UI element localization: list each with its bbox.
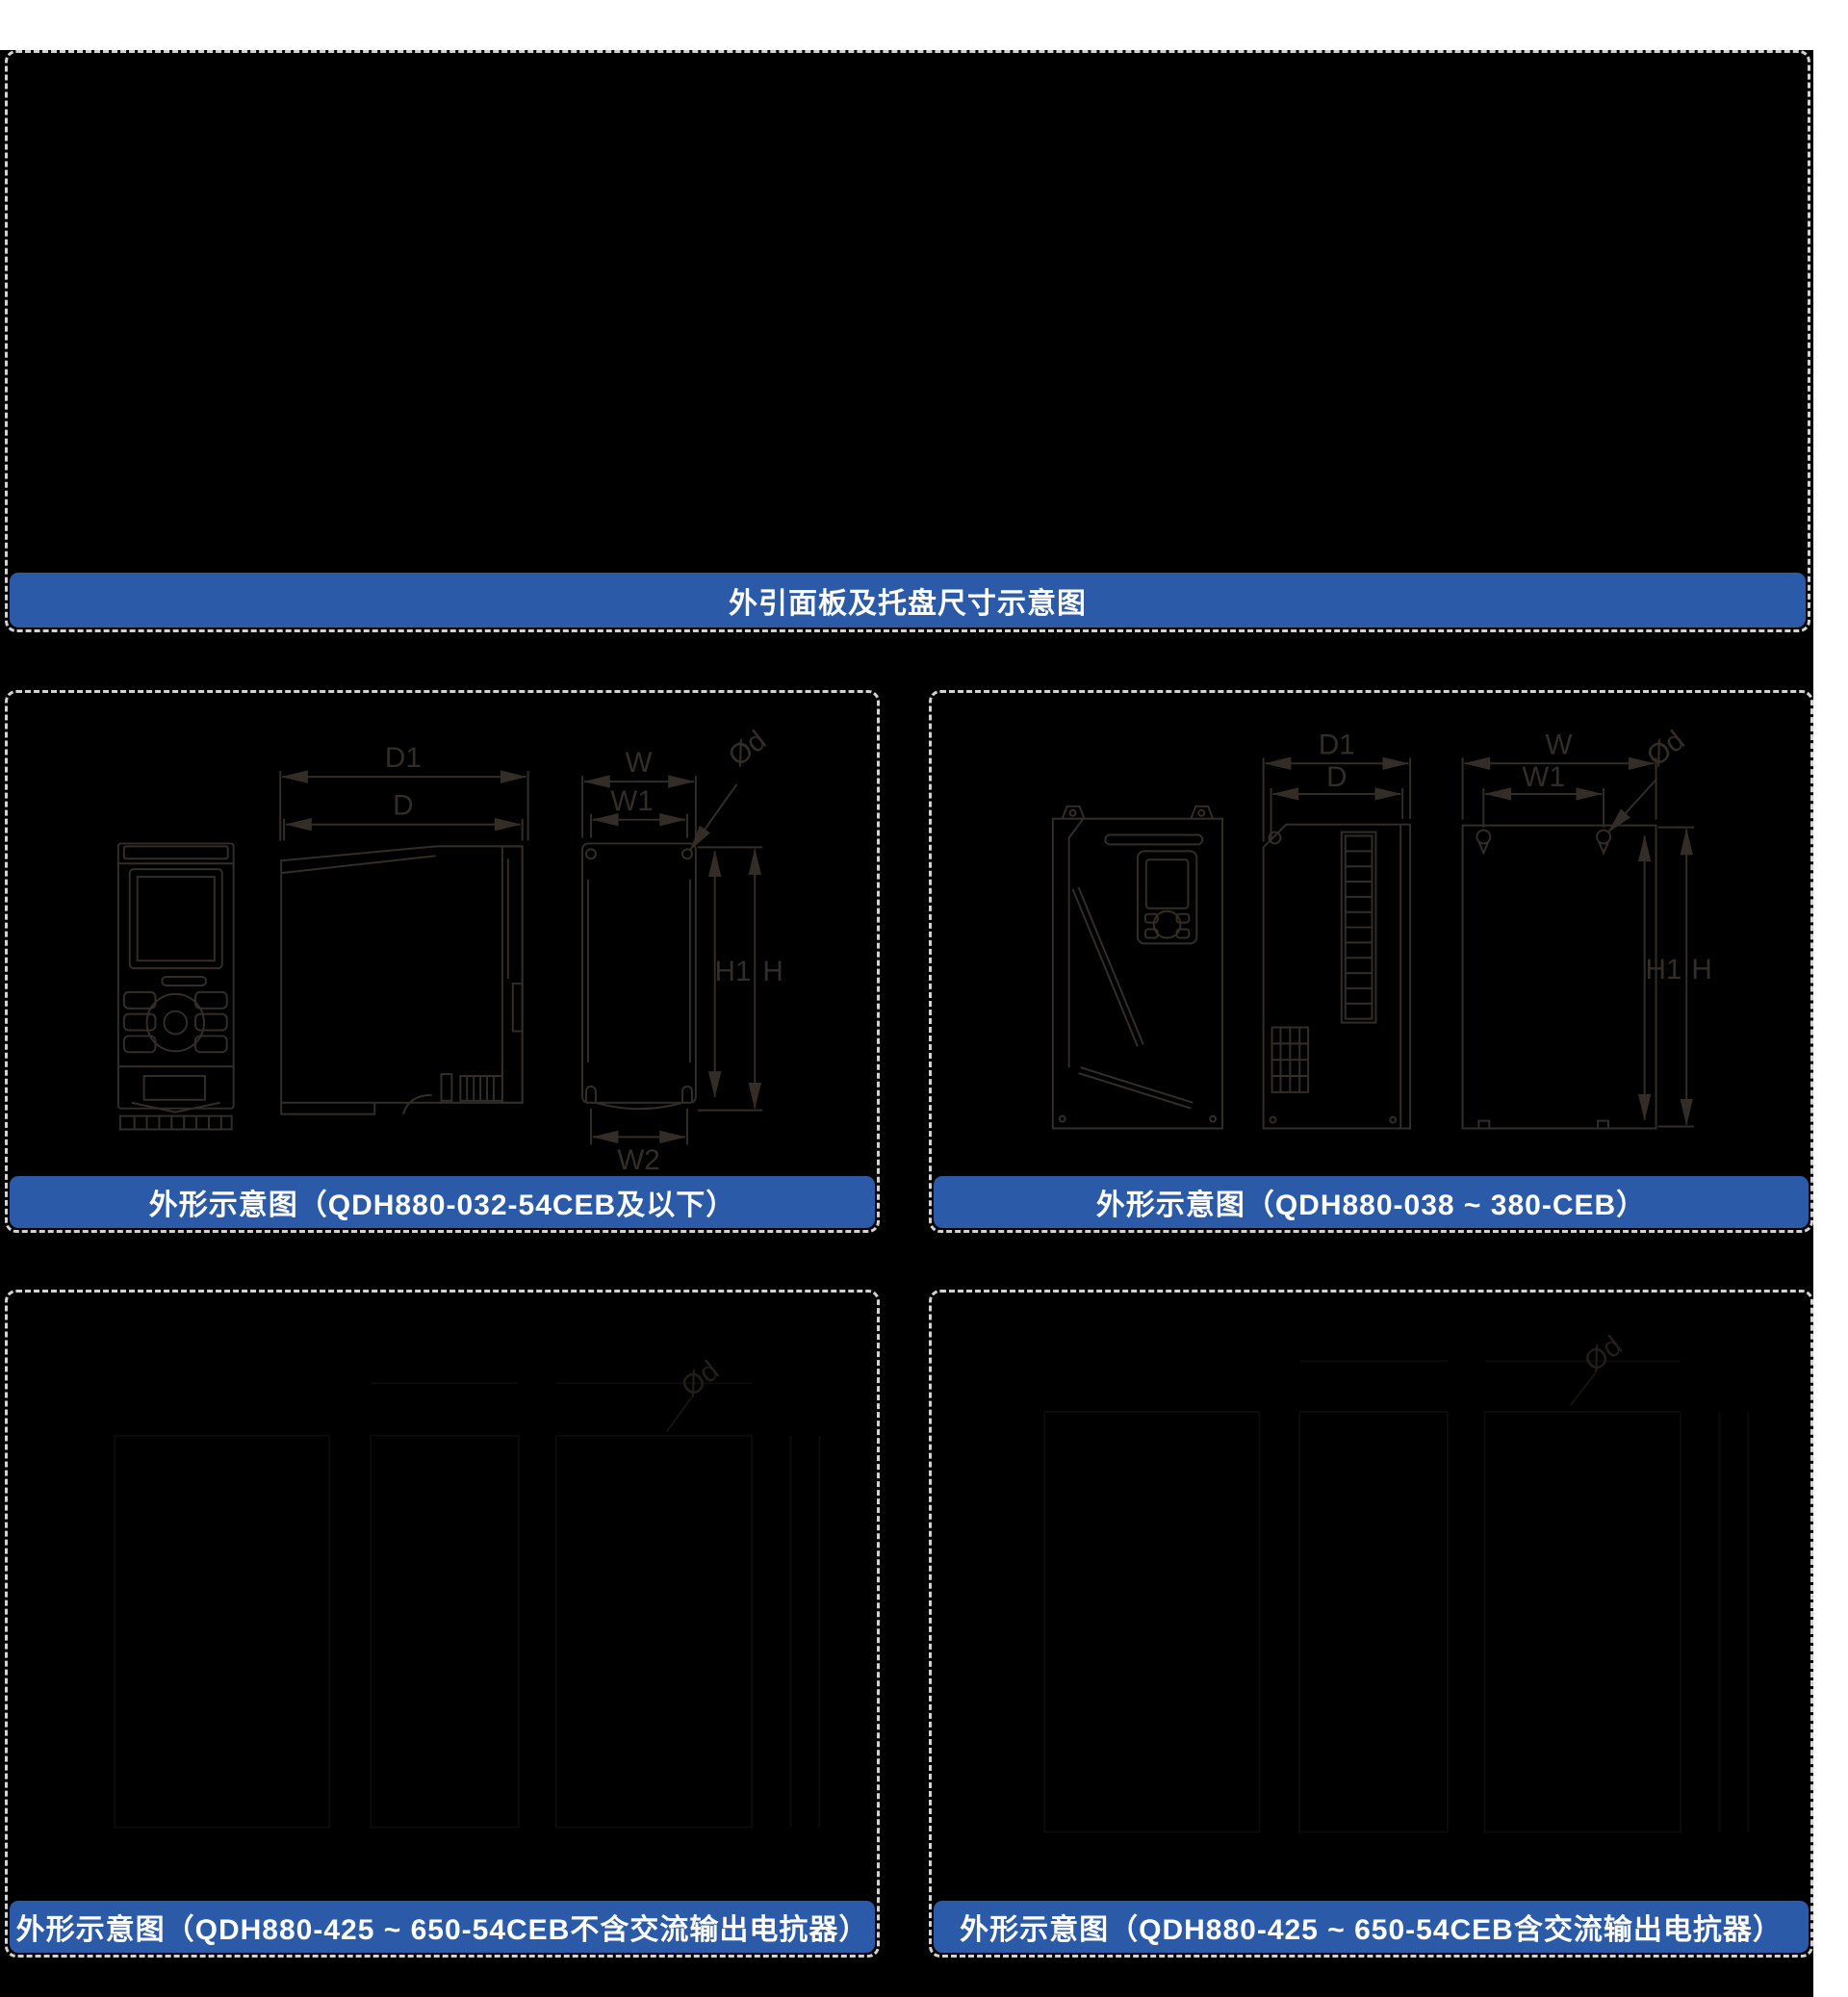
dim-label-w1: W1 — [1522, 761, 1565, 793]
dim-label-w: W — [1546, 729, 1573, 760]
front-view-keypad — [118, 843, 234, 1129]
panel-outline-mid-frame: D1 D W W1 H1 H Ød 外形示意图（QDH880-038 ~ 380… — [929, 690, 1813, 1233]
banner-outline-small-frame-title: 外形示意图（QDH880-032-54CEB及以下） — [149, 1181, 735, 1223]
dim-label-w1: W1 — [610, 785, 654, 817]
side-view — [281, 846, 522, 1114]
banner-outline-large-no-reactor: 外形示意图（QDH880-425 ~ 650-54CEB不含交流输出电抗器） — [10, 1901, 875, 1953]
banner-outline-large-no-reactor-title: 外形示意图（QDH880-425 ~ 650-54CEB不含交流输出电抗器） — [16, 1906, 869, 1948]
dim-label-h: H — [1691, 954, 1711, 986]
dim-label-d: D — [393, 790, 413, 822]
dim-label-h1: H1 — [1645, 954, 1681, 986]
rear-view — [1463, 826, 1656, 1129]
banner-keypad-tray: 外引面板及托盘尺寸示意图 — [10, 573, 1806, 627]
panel-keypad-tray-dimensions: 外引面板及托盘尺寸示意图 — [5, 50, 1810, 632]
page: 外引面板及托盘尺寸示意图 — [0, 0, 1848, 1997]
dim-label-od: Ød — [676, 1355, 726, 1403]
panel-outline-small-frame: D1 D W W1 H1 H W2 Ød 外形示意图（QDH880-032-54… — [5, 690, 880, 1233]
dim-label-w2: W2 — [617, 1144, 660, 1174]
dimension-lines — [1264, 757, 1695, 1126]
outline-drawing-large-no-reactor: Ød — [8, 1293, 877, 1899]
front-view — [1053, 806, 1222, 1129]
dim-label-od: Ød — [723, 725, 773, 773]
hidden-drawing — [115, 1383, 819, 1827]
dim-label-d: D — [1326, 761, 1347, 793]
dim-label-h: H — [762, 956, 783, 987]
rear-view — [582, 843, 696, 1109]
od-leader-line — [667, 1397, 692, 1432]
outline-drawing-small-frame: D1 D W W1 H1 H W2 Ød — [8, 693, 877, 1174]
outline-drawing-large-with-reactor: Ød — [932, 1293, 1810, 1899]
dim-label-d1: D1 — [385, 742, 422, 774]
dim-label-h1: H1 — [715, 956, 752, 987]
banner-outline-small-frame: 外形示意图（QDH880-032-54CEB及以下） — [10, 1176, 875, 1228]
dim-label-w: W — [625, 747, 652, 779]
panel-outline-large-no-reactor: Ød 外形示意图（QDH880-425 ~ 650-54CEB不含交流输出电抗器… — [5, 1290, 880, 1958]
banner-outline-mid-frame: 外形示意图（QDH880-038 ~ 380-CEB） — [934, 1176, 1809, 1228]
dim-label-od: Ød — [1641, 725, 1691, 773]
side-view — [1264, 825, 1410, 1129]
banner-keypad-tray-title: 外引面板及托盘尺寸示意图 — [729, 579, 1087, 622]
od-leader-line — [1571, 1372, 1596, 1405]
banner-outline-large-with-reactor-title: 外形示意图（QDH880-425 ~ 650-54CEB含交流输出电抗器） — [960, 1906, 1783, 1948]
panel-outline-large-with-reactor: Ød 外形示意图（QDH880-425 ~ 650-54CEB含交流输出电抗器） — [929, 1290, 1813, 1958]
content-canvas: 外引面板及托盘尺寸示意图 — [0, 50, 1813, 1997]
outline-drawing-mid-frame: D1 D W W1 H1 H Ød — [932, 693, 1810, 1174]
dim-label-od: Ød — [1578, 1330, 1629, 1378]
hidden-drawing — [1044, 1361, 1748, 1831]
banner-outline-large-with-reactor: 外形示意图（QDH880-425 ~ 650-54CEB含交流输出电抗器） — [934, 1901, 1809, 1953]
banner-outline-mid-frame-title: 外形示意图（QDH880-038 ~ 380-CEB） — [1096, 1181, 1646, 1223]
dim-label-d1: D1 — [1319, 729, 1355, 760]
